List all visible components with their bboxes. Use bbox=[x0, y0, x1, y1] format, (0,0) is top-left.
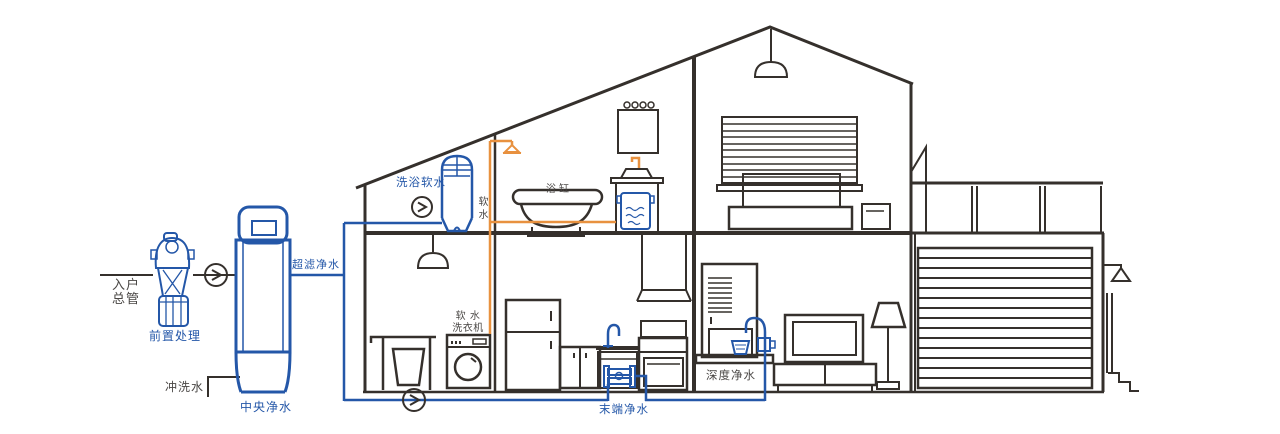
label-deep-purifier: 深度净水 bbox=[706, 368, 756, 382]
kitchen-cabinets bbox=[560, 347, 600, 388]
house-linework bbox=[0, 0, 1280, 434]
flow-arrow-icon bbox=[412, 197, 432, 217]
label-bath-softener: 洗浴软水 bbox=[396, 175, 446, 189]
label-soft-water: 软水 bbox=[474, 196, 488, 222]
range-hood bbox=[637, 235, 691, 301]
tv-stand bbox=[774, 364, 876, 391]
washing-machine bbox=[447, 335, 490, 388]
label-terminal-purifier: 末端净水 bbox=[599, 402, 649, 416]
fridge bbox=[506, 300, 560, 390]
kitchen-faucet-icon bbox=[603, 325, 619, 348]
outdoor-lamp-icon bbox=[1103, 265, 1130, 281]
laundry-sink bbox=[371, 337, 436, 390]
pendant-lamp bbox=[755, 29, 787, 77]
label-bathtub: 浴缸 bbox=[546, 183, 572, 197]
label-central-purifier: 中央净水 bbox=[240, 400, 292, 414]
bath-softener-device bbox=[442, 156, 472, 231]
vanity-faucet-icon bbox=[632, 158, 639, 168]
mirror bbox=[618, 102, 658, 153]
label-pre-treatment: 前置处理 bbox=[149, 329, 201, 343]
pre-filter-device bbox=[151, 233, 194, 326]
vanity-appliance-device bbox=[617, 193, 654, 229]
label-ultrafiltration: 超滤净水 bbox=[292, 258, 340, 272]
dispenser-faucet-icon bbox=[746, 318, 775, 352]
flush-pipe bbox=[208, 377, 240, 397]
shower-icon bbox=[503, 145, 521, 153]
soft-water-pipe bbox=[490, 141, 616, 334]
nightstand bbox=[862, 204, 890, 229]
label-inlet-main: 入户 总管 bbox=[112, 279, 140, 307]
diagram-canvas: 入户 总管 前置处理 中央净水 超滤净水 冲洗水 洗浴软水 软水 浴缸 软 水 … bbox=[0, 0, 1280, 434]
steps bbox=[1108, 373, 1139, 391]
vanity bbox=[611, 169, 663, 232]
water-cup-icon bbox=[732, 341, 749, 354]
label-flush-water: 冲洗水 bbox=[165, 380, 204, 394]
central-purifier-device bbox=[236, 207, 290, 392]
garage-door bbox=[918, 248, 1092, 388]
label-soft-water-washer: 软 水 洗衣机 bbox=[448, 311, 488, 335]
drainpipe bbox=[1107, 293, 1112, 373]
pendant-lamp bbox=[418, 235, 448, 268]
terminal-filter-device bbox=[604, 366, 635, 387]
flat-roof-railing bbox=[911, 147, 1103, 233]
tv bbox=[785, 315, 863, 362]
